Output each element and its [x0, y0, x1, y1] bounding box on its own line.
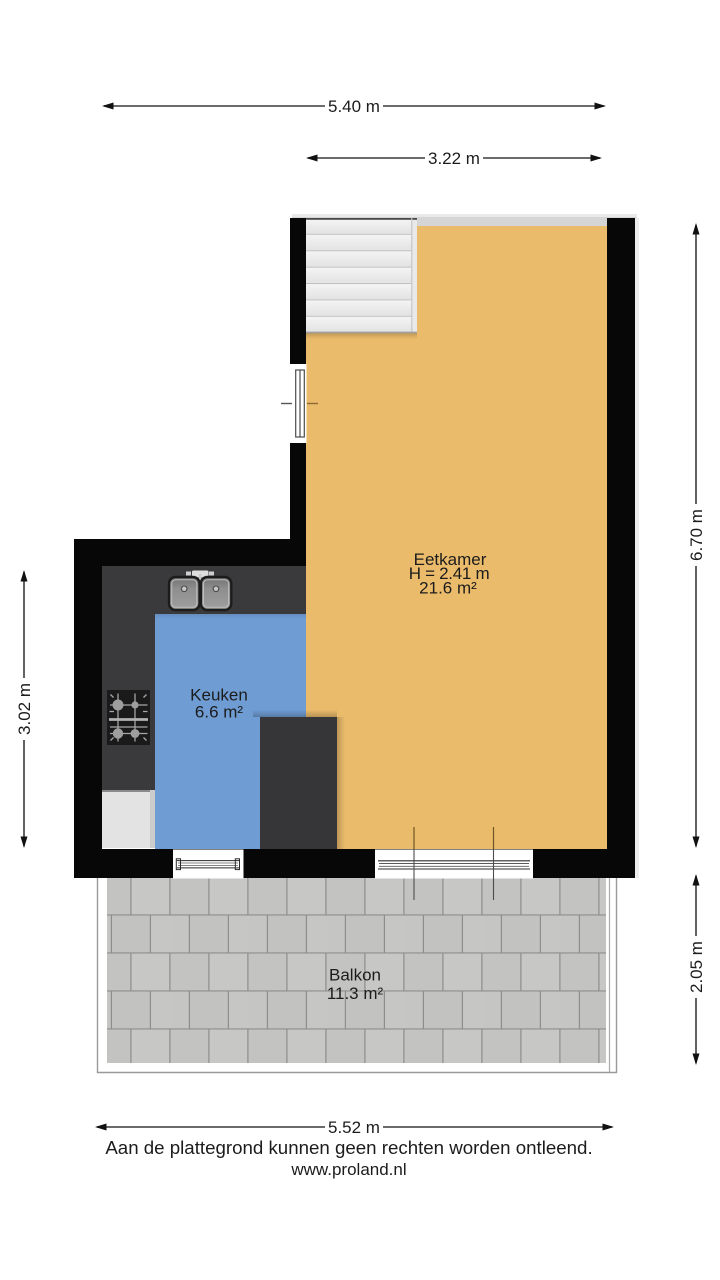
svg-text:6.70 m: 6.70 m — [687, 509, 706, 561]
svg-text:www.proland.nl: www.proland.nl — [290, 1160, 406, 1179]
svg-text:11.3 m²: 11.3 m² — [327, 984, 384, 1003]
svg-text:Aan de plattegrond kunnen geen: Aan de plattegrond kunnen geen rechten w… — [105, 1137, 592, 1158]
svg-text:2.05 m: 2.05 m — [687, 941, 706, 993]
svg-text:5.52 m: 5.52 m — [328, 1118, 380, 1137]
svg-text:5.40 m: 5.40 m — [328, 97, 380, 116]
svg-text:6.6 m²: 6.6 m² — [195, 703, 244, 722]
svg-text:3.22 m: 3.22 m — [428, 149, 480, 168]
svg-text:Balkon: Balkon — [329, 966, 381, 985]
svg-text:21.6 m²: 21.6 m² — [419, 579, 477, 598]
svg-text:3.02 m: 3.02 m — [15, 683, 34, 735]
